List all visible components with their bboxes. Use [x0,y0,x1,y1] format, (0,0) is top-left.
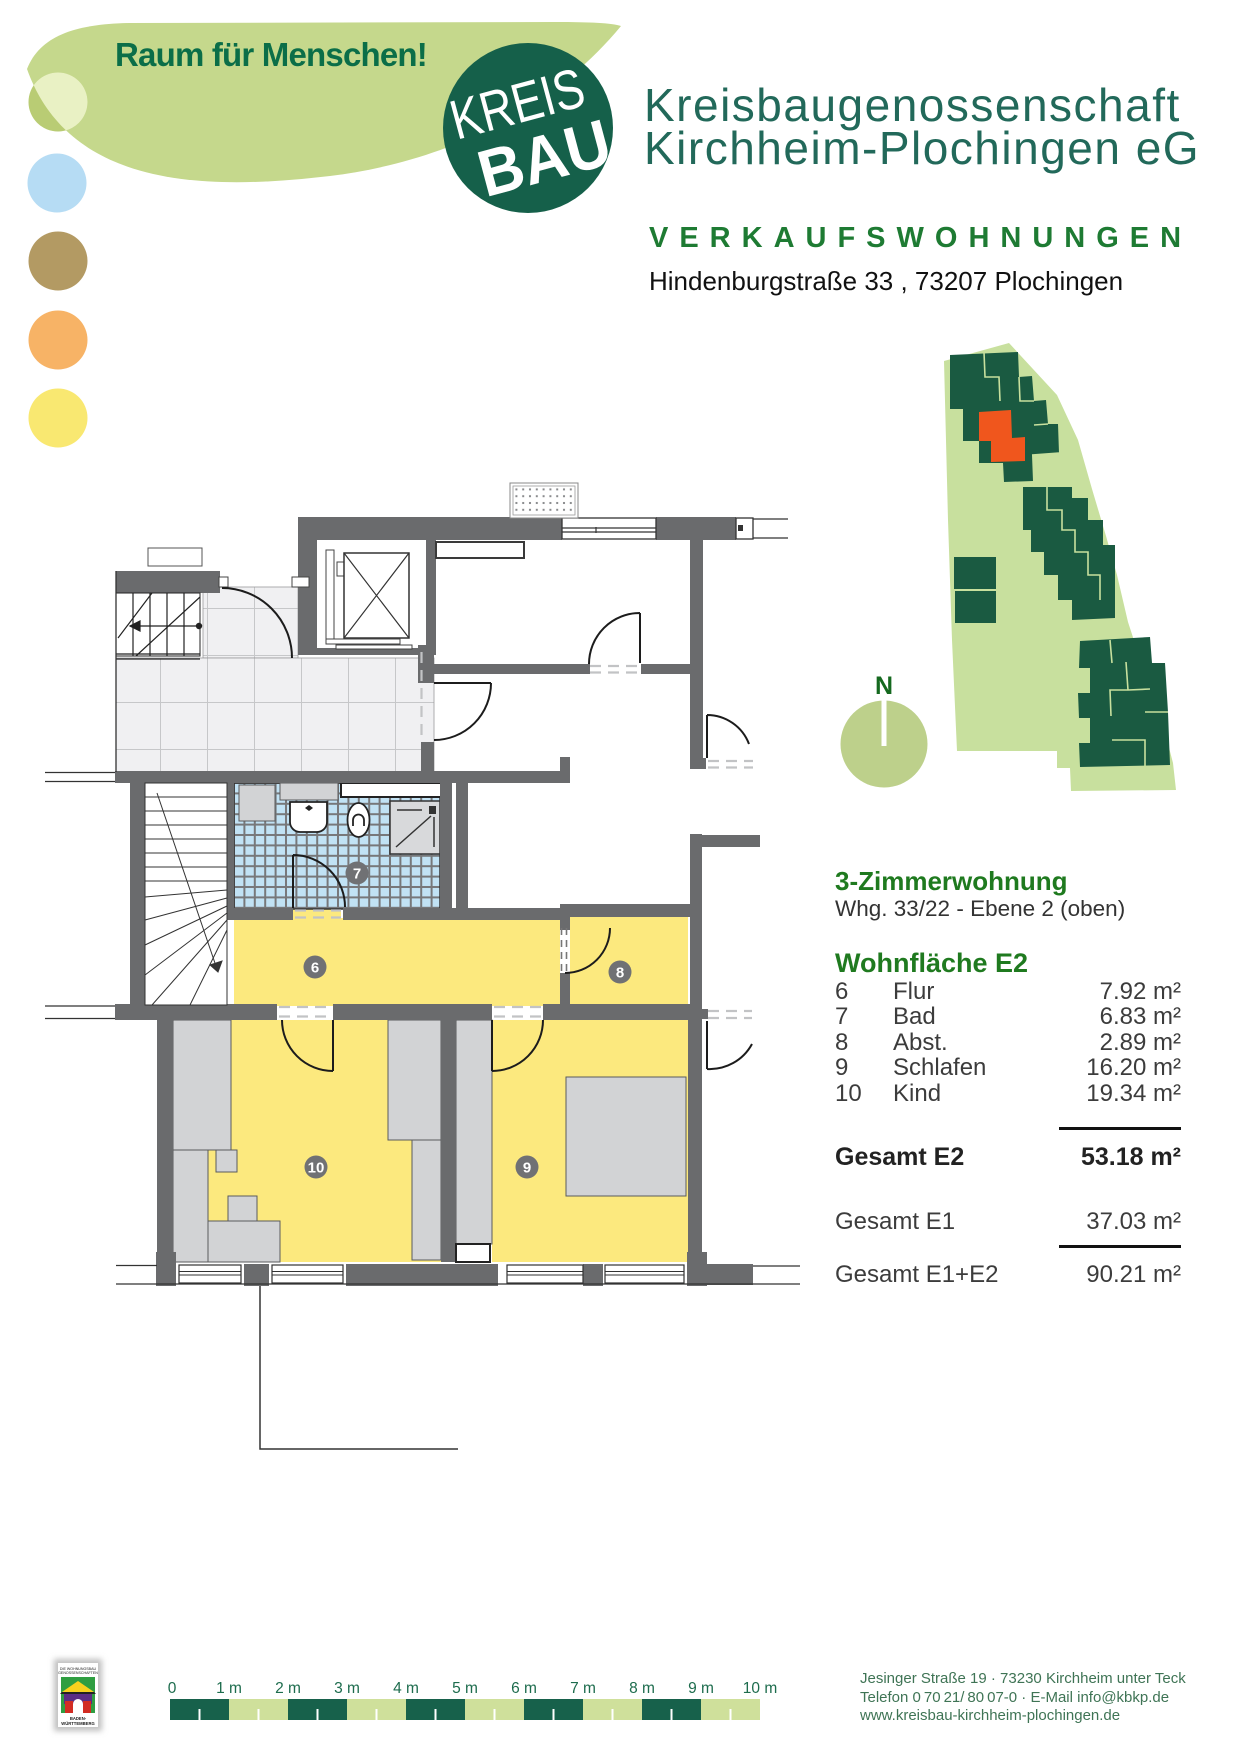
svg-text:9: 9 [523,1160,531,1177]
svg-text:2 m: 2 m [275,1680,301,1697]
svg-text:0: 0 [168,1680,177,1697]
svg-text:WÜRTTEMBERG: WÜRTTEMBERG [61,1721,95,1726]
svg-text:1 m: 1 m [216,1680,242,1697]
svg-text:5 m: 5 m [452,1680,478,1697]
svg-text:7 m: 7 m [570,1680,596,1697]
svg-text:8 m: 8 m [629,1680,655,1697]
svg-text:7: 7 [353,866,361,883]
svg-text:GENOSSENSCHAFTEN: GENOSSENSCHAFTEN [58,1671,98,1675]
svg-text:9 m: 9 m [688,1680,714,1697]
svg-text:6 m: 6 m [511,1680,537,1697]
svg-text:10: 10 [308,1160,325,1177]
svg-text:6: 6 [311,960,319,977]
svg-text:10 m: 10 m [743,1680,777,1697]
svg-text:3 m: 3 m [334,1680,360,1697]
svg-text:8: 8 [616,965,624,982]
svg-text:4 m: 4 m [393,1680,419,1697]
svg-text:N: N [875,672,893,700]
